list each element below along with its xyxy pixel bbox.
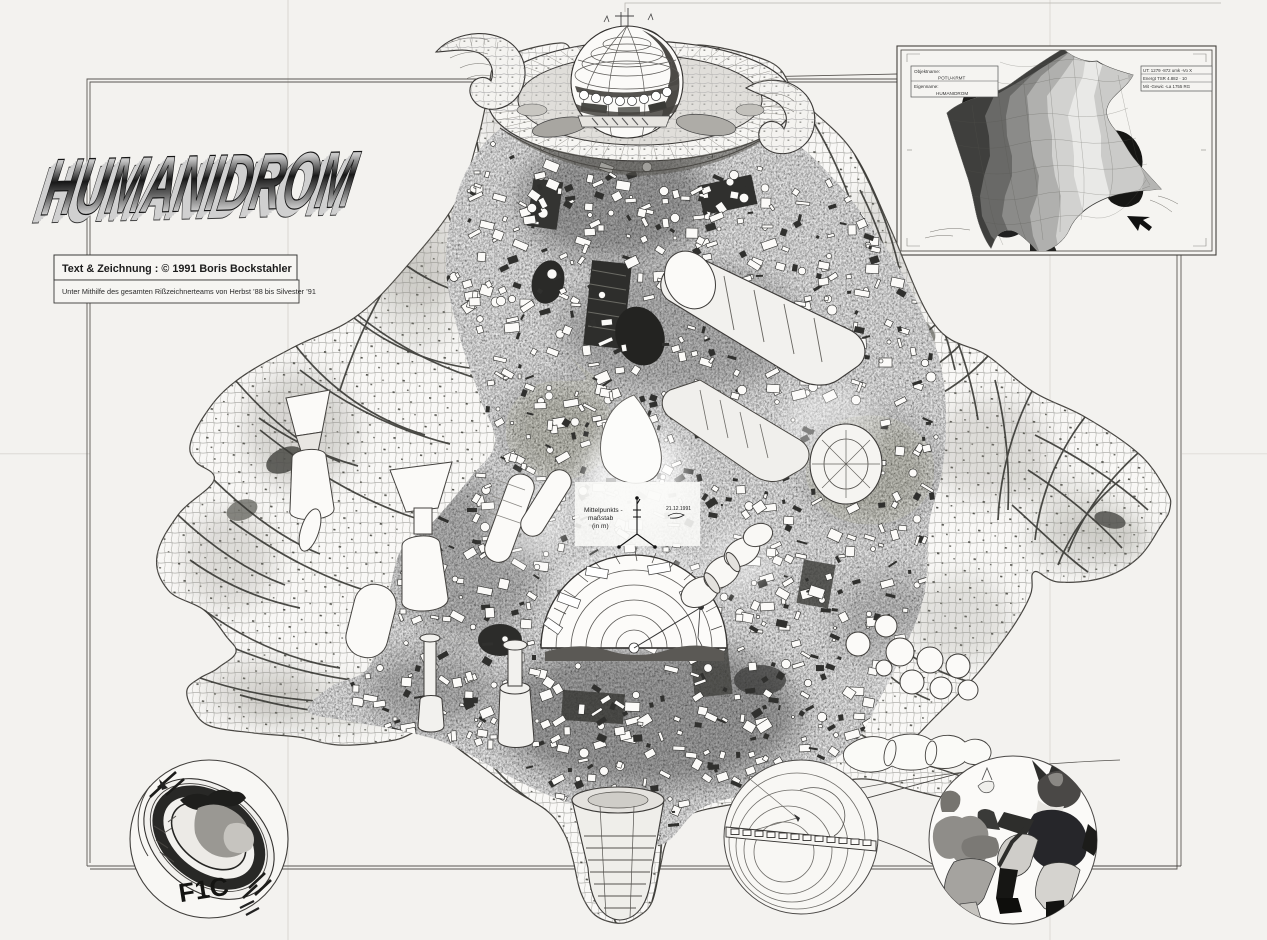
svg-text:Text & Zeichnung : © 1991 Bo: Text & Zeichnung : © 1991 Boris Bockstah… <box>62 263 293 275</box>
svg-text:Mittelpunkts -: Mittelpunkts - <box>584 507 623 514</box>
svg-text:HUMANIDROM: HUMANIDROM <box>37 135 366 233</box>
svg-text:POTU-KRMT: POTU-KRMT <box>938 76 965 81</box>
svg-text:(in m): (in m) <box>592 523 609 530</box>
svg-text:Unter Mithilfe des gesamten: Unter Mithilfe des gesamten Rißzeichnert… <box>62 287 316 296</box>
svg-text:maßstab: maßstab <box>588 515 614 522</box>
svg-text:21.12.1991: 21.12.1991 <box>666 506 691 512</box>
svg-text:UT: 1279 -872 umk -Vo X: UT: 1279 -872 umk -Vo X <box>1143 68 1192 73</box>
svg-text:Objektname:: Objektname: <box>914 69 940 74</box>
svg-text:Energt TSR 4.882 · 10: Energt TSR 4.882 · 10 <box>1143 76 1187 81</box>
svg-text:Eigenname:: Eigenname: <box>914 84 939 89</box>
svg-text:Mit -Gewic -La 1755 RG: Mit -Gewic -La 1755 RG <box>1143 84 1191 89</box>
svg-text:HUMANIDROM: HUMANIDROM <box>936 91 968 96</box>
